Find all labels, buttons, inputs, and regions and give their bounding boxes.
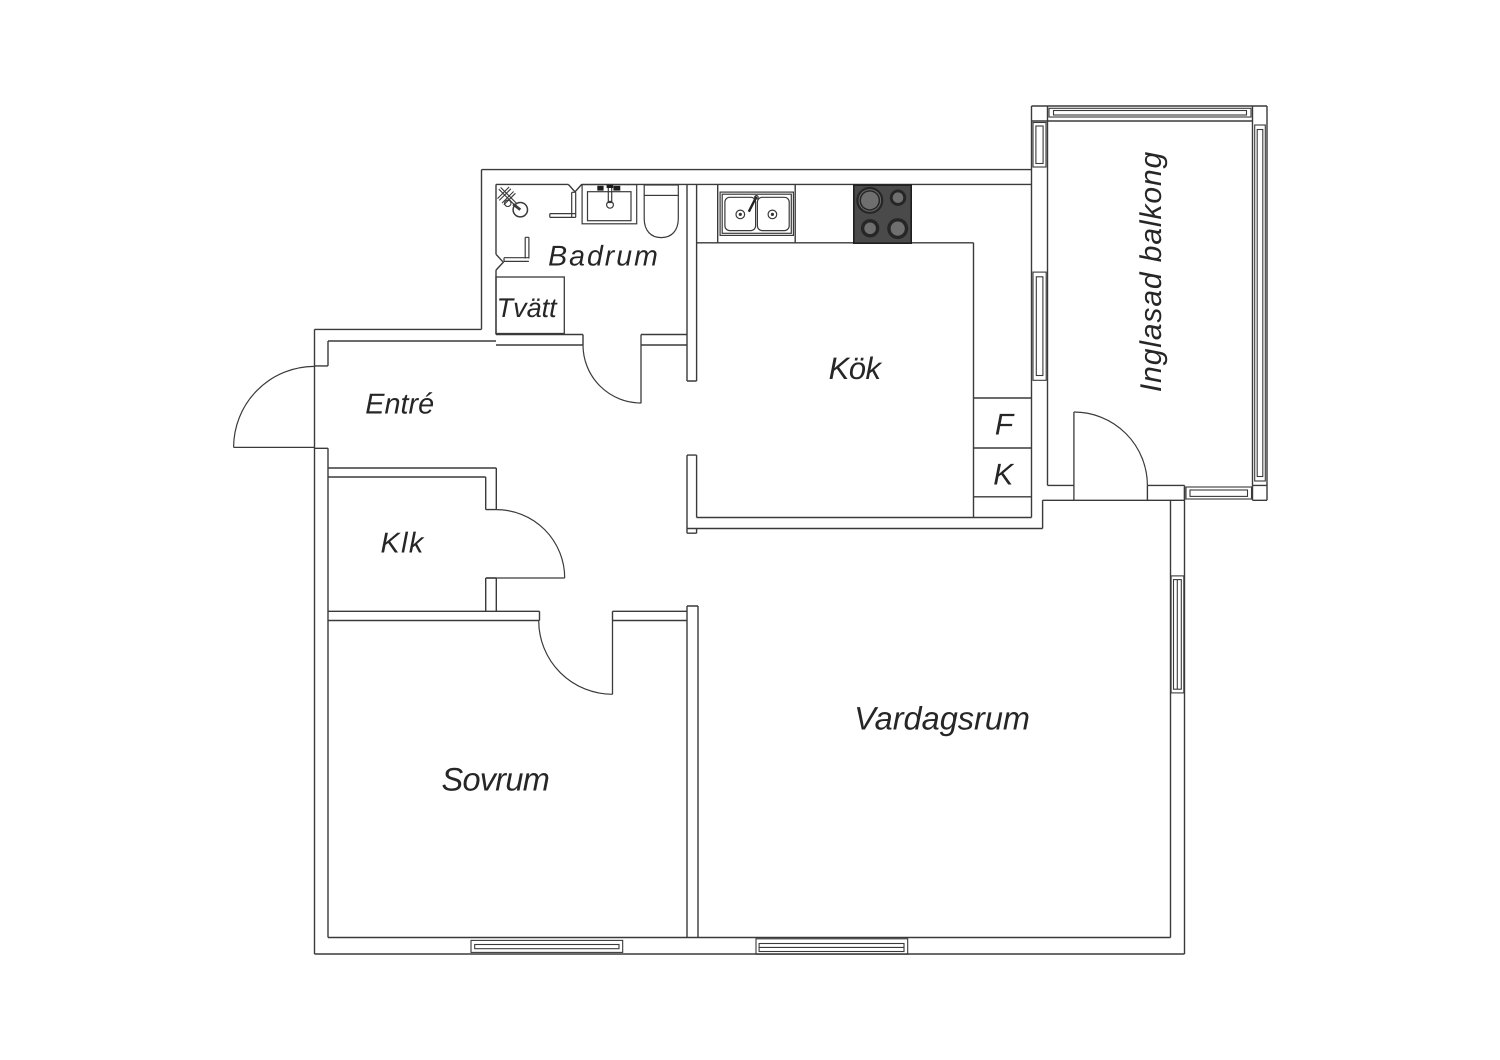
svg-text:Inglasad balkong: Inglasad balkong <box>1135 151 1168 392</box>
svg-text:Vardagsrum: Vardagsrum <box>854 701 1030 737</box>
svg-text:Badrum: Badrum <box>548 241 660 273</box>
svg-text:K: K <box>993 459 1015 492</box>
svg-text:Entré: Entré <box>365 389 434 421</box>
svg-text:Tvätt: Tvätt <box>497 293 559 323</box>
svg-text:Klk: Klk <box>380 528 424 560</box>
svg-text:Sovrum: Sovrum <box>442 761 549 797</box>
svg-text:F: F <box>995 409 1015 442</box>
svg-text:Kök: Kök <box>829 351 883 386</box>
